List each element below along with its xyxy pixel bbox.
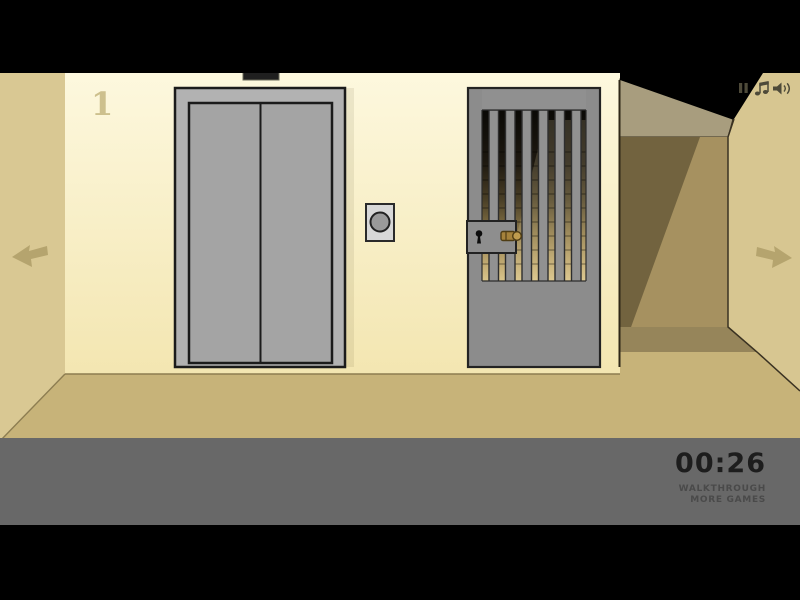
- floor-number-label: 1: [91, 88, 121, 120]
- prison-gate[interactable]: [467, 88, 600, 367]
- timer-display: 00:26: [675, 450, 766, 477]
- keyhole-icon: [476, 230, 483, 237]
- gate-key[interactable]: [501, 232, 521, 241]
- hud-right-panel: 00:26 WALKTHROUGH MORE GAMES: [675, 450, 766, 506]
- gate-lintel: [468, 88, 600, 110]
- bottom-letterbox-bar: [0, 525, 800, 600]
- gate-bottom-panel: [468, 281, 600, 367]
- top-letterbox-bar: [0, 0, 800, 73]
- pause-icon: [739, 83, 742, 93]
- more-games-link[interactable]: MORE GAMES: [675, 495, 766, 506]
- gate-right-stile: [586, 88, 600, 281]
- corridor-opening[interactable]: [620, 73, 800, 391]
- elevator-wall-shadow: [345, 88, 354, 367]
- game-stage: 1 00:26 WALKTHROUGH MORE GAMES: [0, 0, 800, 600]
- call-button[interactable]: [371, 213, 390, 232]
- walkthrough-link[interactable]: WALKTHROUGH: [675, 484, 766, 495]
- hud-bar: 00:26 WALKTHROUGH MORE GAMES: [0, 438, 800, 525]
